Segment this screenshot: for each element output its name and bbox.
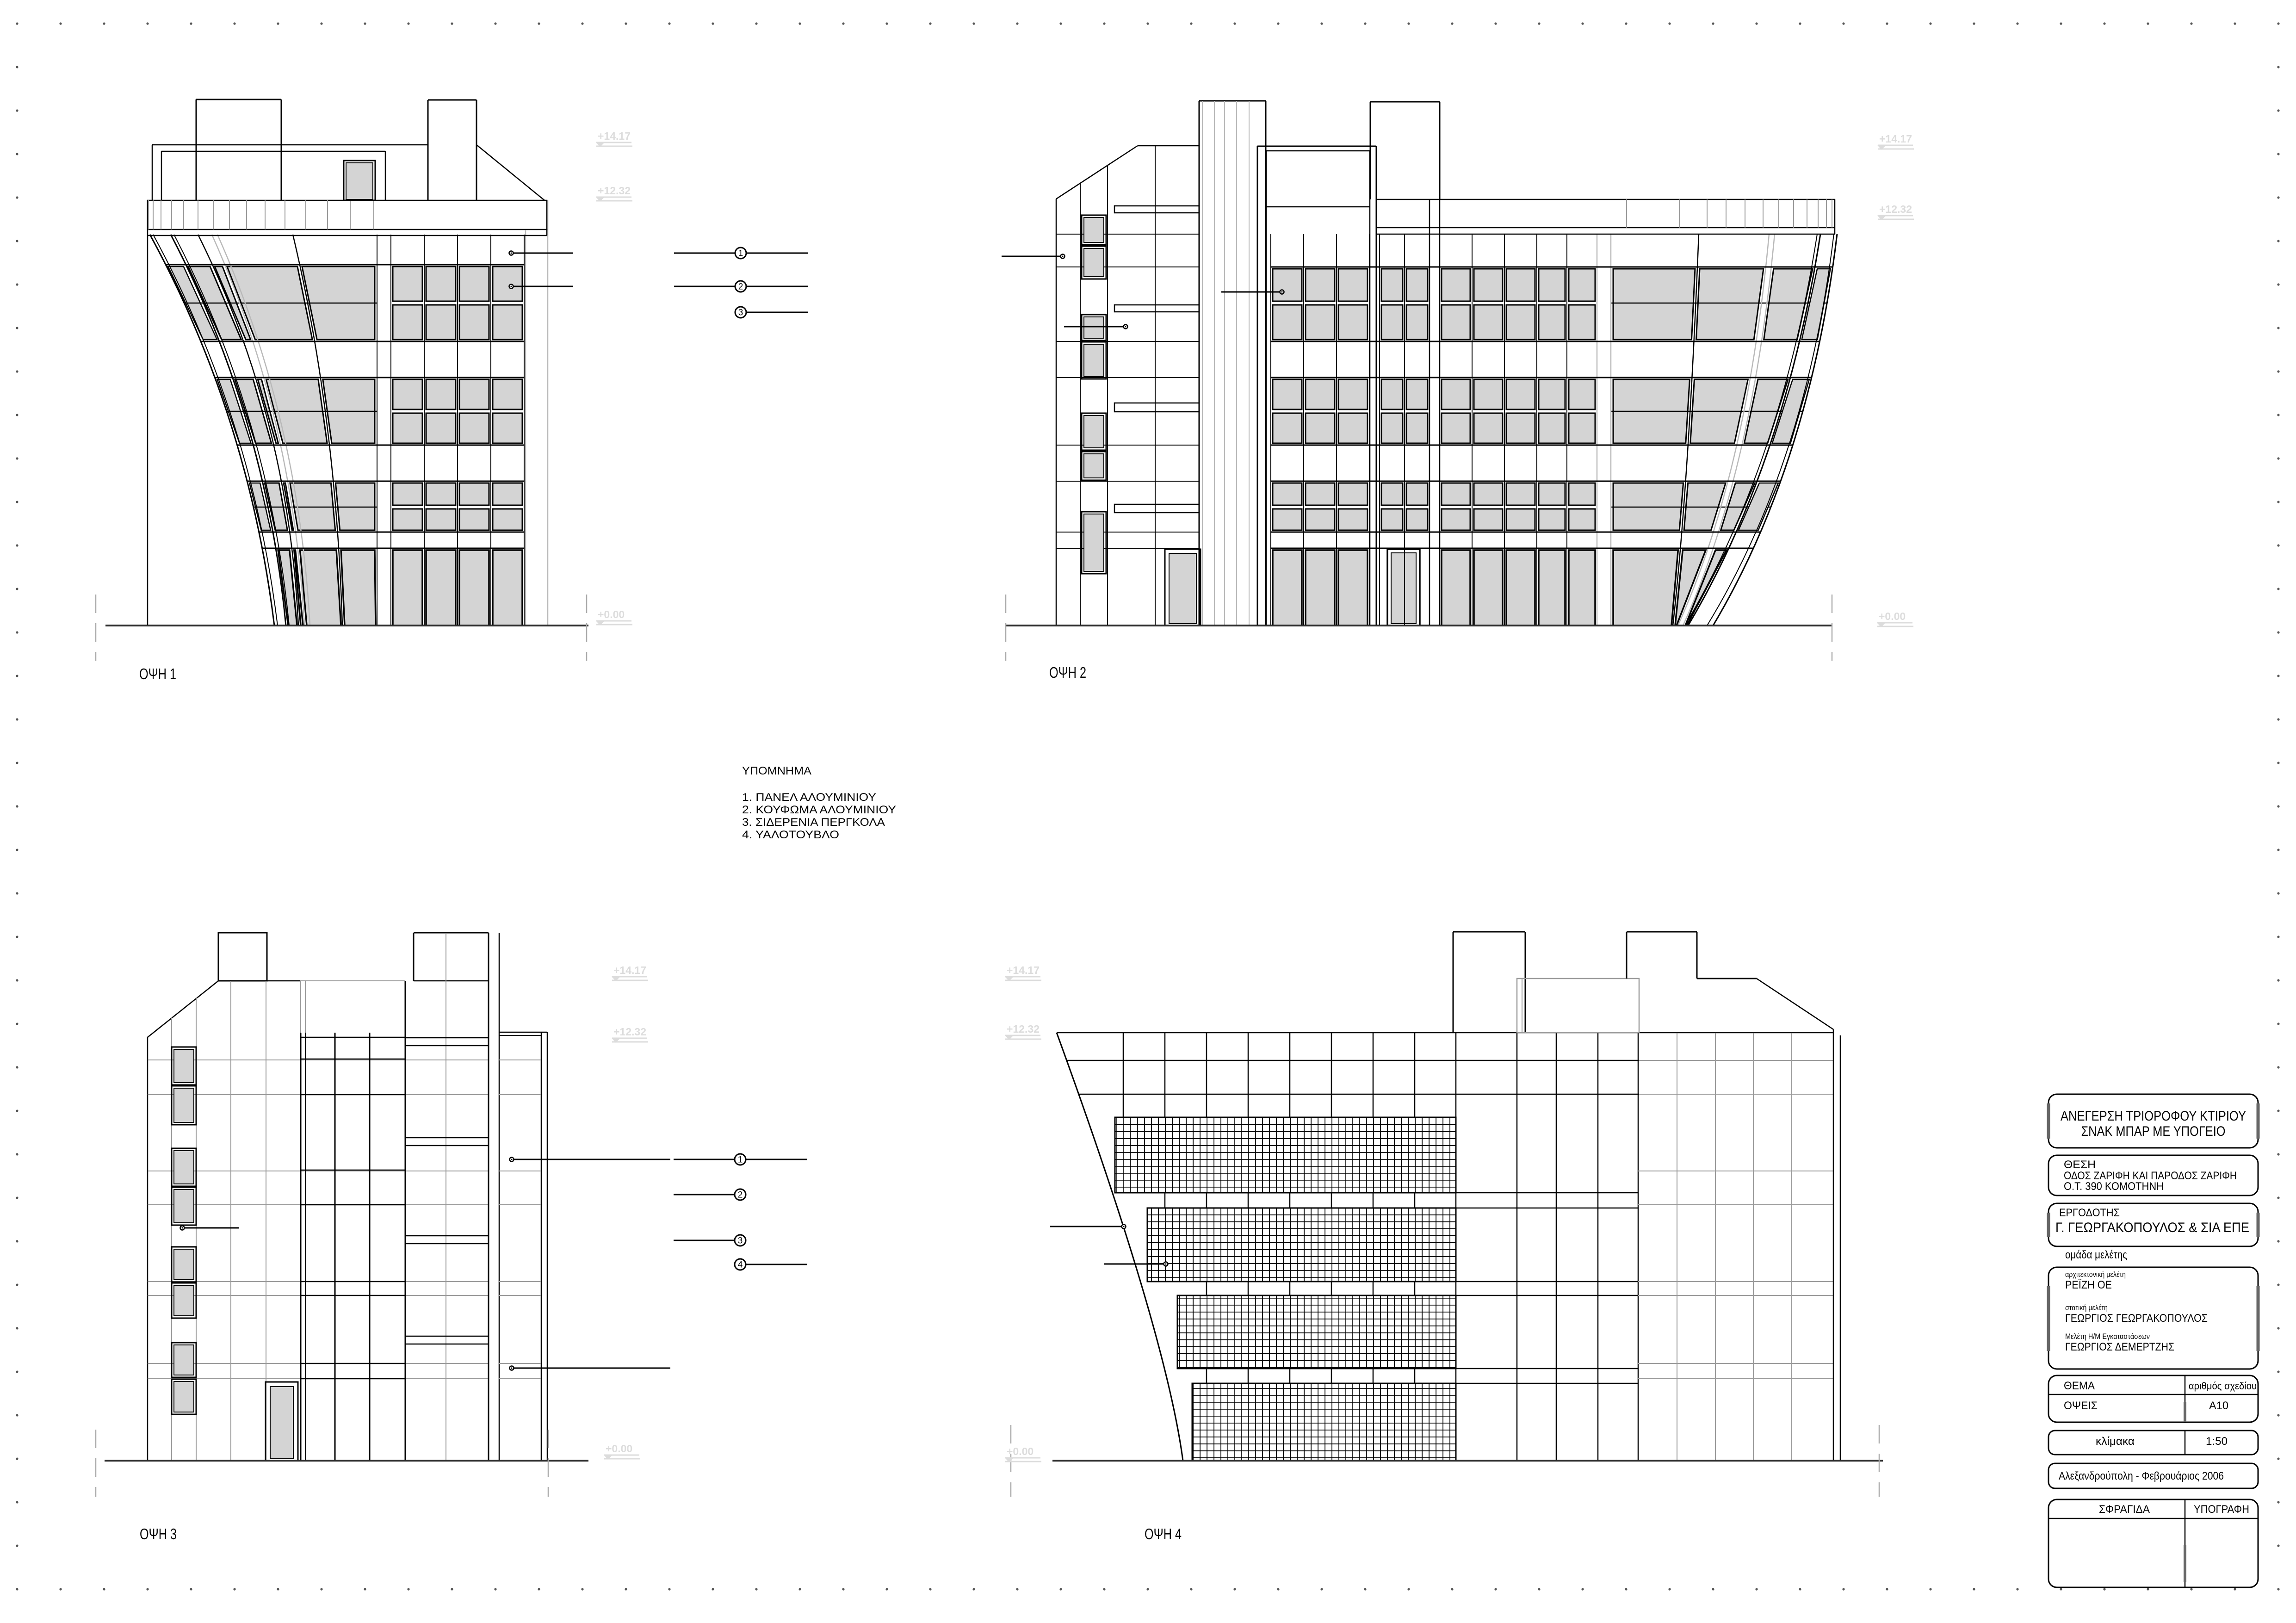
svg-text:ΟΨΗ 4: ΟΨΗ 4 [1145, 1525, 1182, 1542]
svg-text:3: 3 [738, 1236, 743, 1246]
svg-text:+12.32: +12.32 [613, 1026, 646, 1038]
svg-text:1: 1 [738, 249, 743, 259]
svg-text:ΥΠΟΓΡΑΦΗ: ΥΠΟΓΡΑΦΗ [2194, 1503, 2249, 1516]
svg-text:+12.32: +12.32 [1879, 203, 1912, 215]
svg-text:ΡΕΪΖΗ ΟΕ: ΡΕΪΖΗ ΟΕ [2065, 1279, 2112, 1291]
svg-text:αριθμός σχεδίου: αριθμός σχεδίου [2189, 1380, 2257, 1392]
svg-text:+0.00: +0.00 [598, 608, 625, 620]
svg-text:+0.00: +0.00 [606, 1443, 632, 1455]
svg-text:+12.32: +12.32 [1007, 1023, 1040, 1035]
svg-text:2: 2 [738, 282, 743, 292]
svg-text:ΑΝΕΓΕΡΣΗ ΤΡΙΟΡΟΦΟΥ ΚΤΙΡΙΟΥ: ΑΝΕΓΕΡΣΗ ΤΡΙΟΡΟΦΟΥ ΚΤΙΡΙΟΥ [2061, 1109, 2246, 1124]
svg-text:+14.17: +14.17 [1879, 133, 1912, 145]
svg-text:+14.17: +14.17 [1007, 964, 1040, 976]
svg-text:αρχιτεκτονική μελέτη: αρχιτεκτονική μελέτη [2065, 1270, 2126, 1279]
svg-text:ΘΕΜΑ: ΘΕΜΑ [2064, 1380, 2095, 1392]
svg-text:3: 3 [738, 308, 743, 318]
svg-text:3. ΣΙΔΕΡΕΝΙΑ ΠΕΡΓΚΟΛΑ: 3. ΣΙΔΕΡΕΝΙΑ ΠΕΡΓΚΟΛΑ [742, 816, 885, 829]
svg-text:+0.00: +0.00 [1879, 610, 1906, 622]
svg-text:4. ΥΑΛΟΤΟΥΒΛΟ: 4. ΥΑΛΟΤΟΥΒΛΟ [742, 829, 839, 841]
svg-text:Αλεξανδρούπολη - Φεβρουάριος 2: Αλεξανδρούπολη - Φεβρουάριος 2006 [2059, 1470, 2224, 1482]
svg-text:ΥΠΟΜΝΗΜΑ: ΥΠΟΜΝΗΜΑ [742, 765, 811, 777]
svg-text:+12.32: +12.32 [598, 185, 631, 197]
svg-text:Ο.Τ. 390 ΚΟΜΟΤΗΝΗ: Ο.Τ. 390 ΚΟΜΟΤΗΝΗ [2064, 1180, 2164, 1193]
svg-text:ΕΡΓΟΔΟΤΗΣ: ΕΡΓΟΔΟΤΗΣ [2059, 1207, 2120, 1219]
svg-text:+0.00: +0.00 [1007, 1445, 1034, 1457]
svg-text:Γ. ΓΕΩΡΓΑΚΟΠΟΥΛΟΣ & ΣΙΑ ΕΠΕ: Γ. ΓΕΩΡΓΑΚΟΠΟΥΛΟΣ & ΣΙΑ ΕΠΕ [2055, 1220, 2249, 1235]
svg-text:ΣΝΑΚ ΜΠΑΡ ΜΕ ΥΠΟΓΕΙΟ: ΣΝΑΚ ΜΠΑΡ ΜΕ ΥΠΟΓΕΙΟ [2081, 1124, 2226, 1139]
svg-text:ΟΨΕΙΣ: ΟΨΕΙΣ [2064, 1400, 2098, 1412]
svg-text:ομάδα μελέτης: ομάδα μελέτης [2065, 1249, 2127, 1261]
svg-text:2. ΚΟΥΦΩΜΑ ΑΛΟΥΜΙΝΙΟΥ: 2. ΚΟΥΦΩΜΑ ΑΛΟΥΜΙΝΙΟΥ [742, 804, 896, 816]
svg-text:στατική μελέτη: στατική μελέτη [2065, 1303, 2108, 1312]
svg-text:ΓΕΩΡΓΙΟΣ ΔΕΜΕΡΤΖΗΣ: ΓΕΩΡΓΙΟΣ ΔΕΜΕΡΤΖΗΣ [2065, 1341, 2174, 1353]
svg-text:ΟΨΗ 2: ΟΨΗ 2 [1049, 664, 1086, 681]
svg-text:Μελέτη Η/Μ Εγκαταστάσεων: Μελέτη Η/Μ Εγκαταστάσεων [2065, 1332, 2150, 1341]
svg-text:2: 2 [738, 1190, 743, 1200]
svg-text:ΘΕΣΗ: ΘΕΣΗ [2064, 1158, 2096, 1171]
svg-text:Α10: Α10 [2209, 1400, 2228, 1412]
svg-text:+14.17: +14.17 [598, 130, 631, 142]
svg-text:ΟΨΗ 3: ΟΨΗ 3 [140, 1525, 177, 1542]
svg-text:ΓΕΩΡΓΙΟΣ ΓΕΩΡΓΑΚΟΠΟΥΛΟΣ: ΓΕΩΡΓΙΟΣ ΓΕΩΡΓΑΚΟΠΟΥΛΟΣ [2065, 1312, 2208, 1325]
svg-text:1: 1 [738, 1155, 743, 1165]
svg-text:ΟΨΗ 1: ΟΨΗ 1 [139, 665, 176, 682]
svg-text:4: 4 [738, 1260, 743, 1270]
svg-text:1. ΠΑΝΕΛ ΑΛΟΥΜΙΝΙΟΥ: 1. ΠΑΝΕΛ ΑΛΟΥΜΙΝΙΟΥ [742, 791, 876, 804]
svg-text:κλίμακα: κλίμακα [2096, 1435, 2135, 1448]
svg-text:1:50: 1:50 [2206, 1435, 2228, 1448]
svg-text:ΣΦΡΑΓΙΔΑ: ΣΦΡΑΓΙΔΑ [2099, 1503, 2150, 1516]
svg-text:+14.17: +14.17 [613, 964, 646, 976]
